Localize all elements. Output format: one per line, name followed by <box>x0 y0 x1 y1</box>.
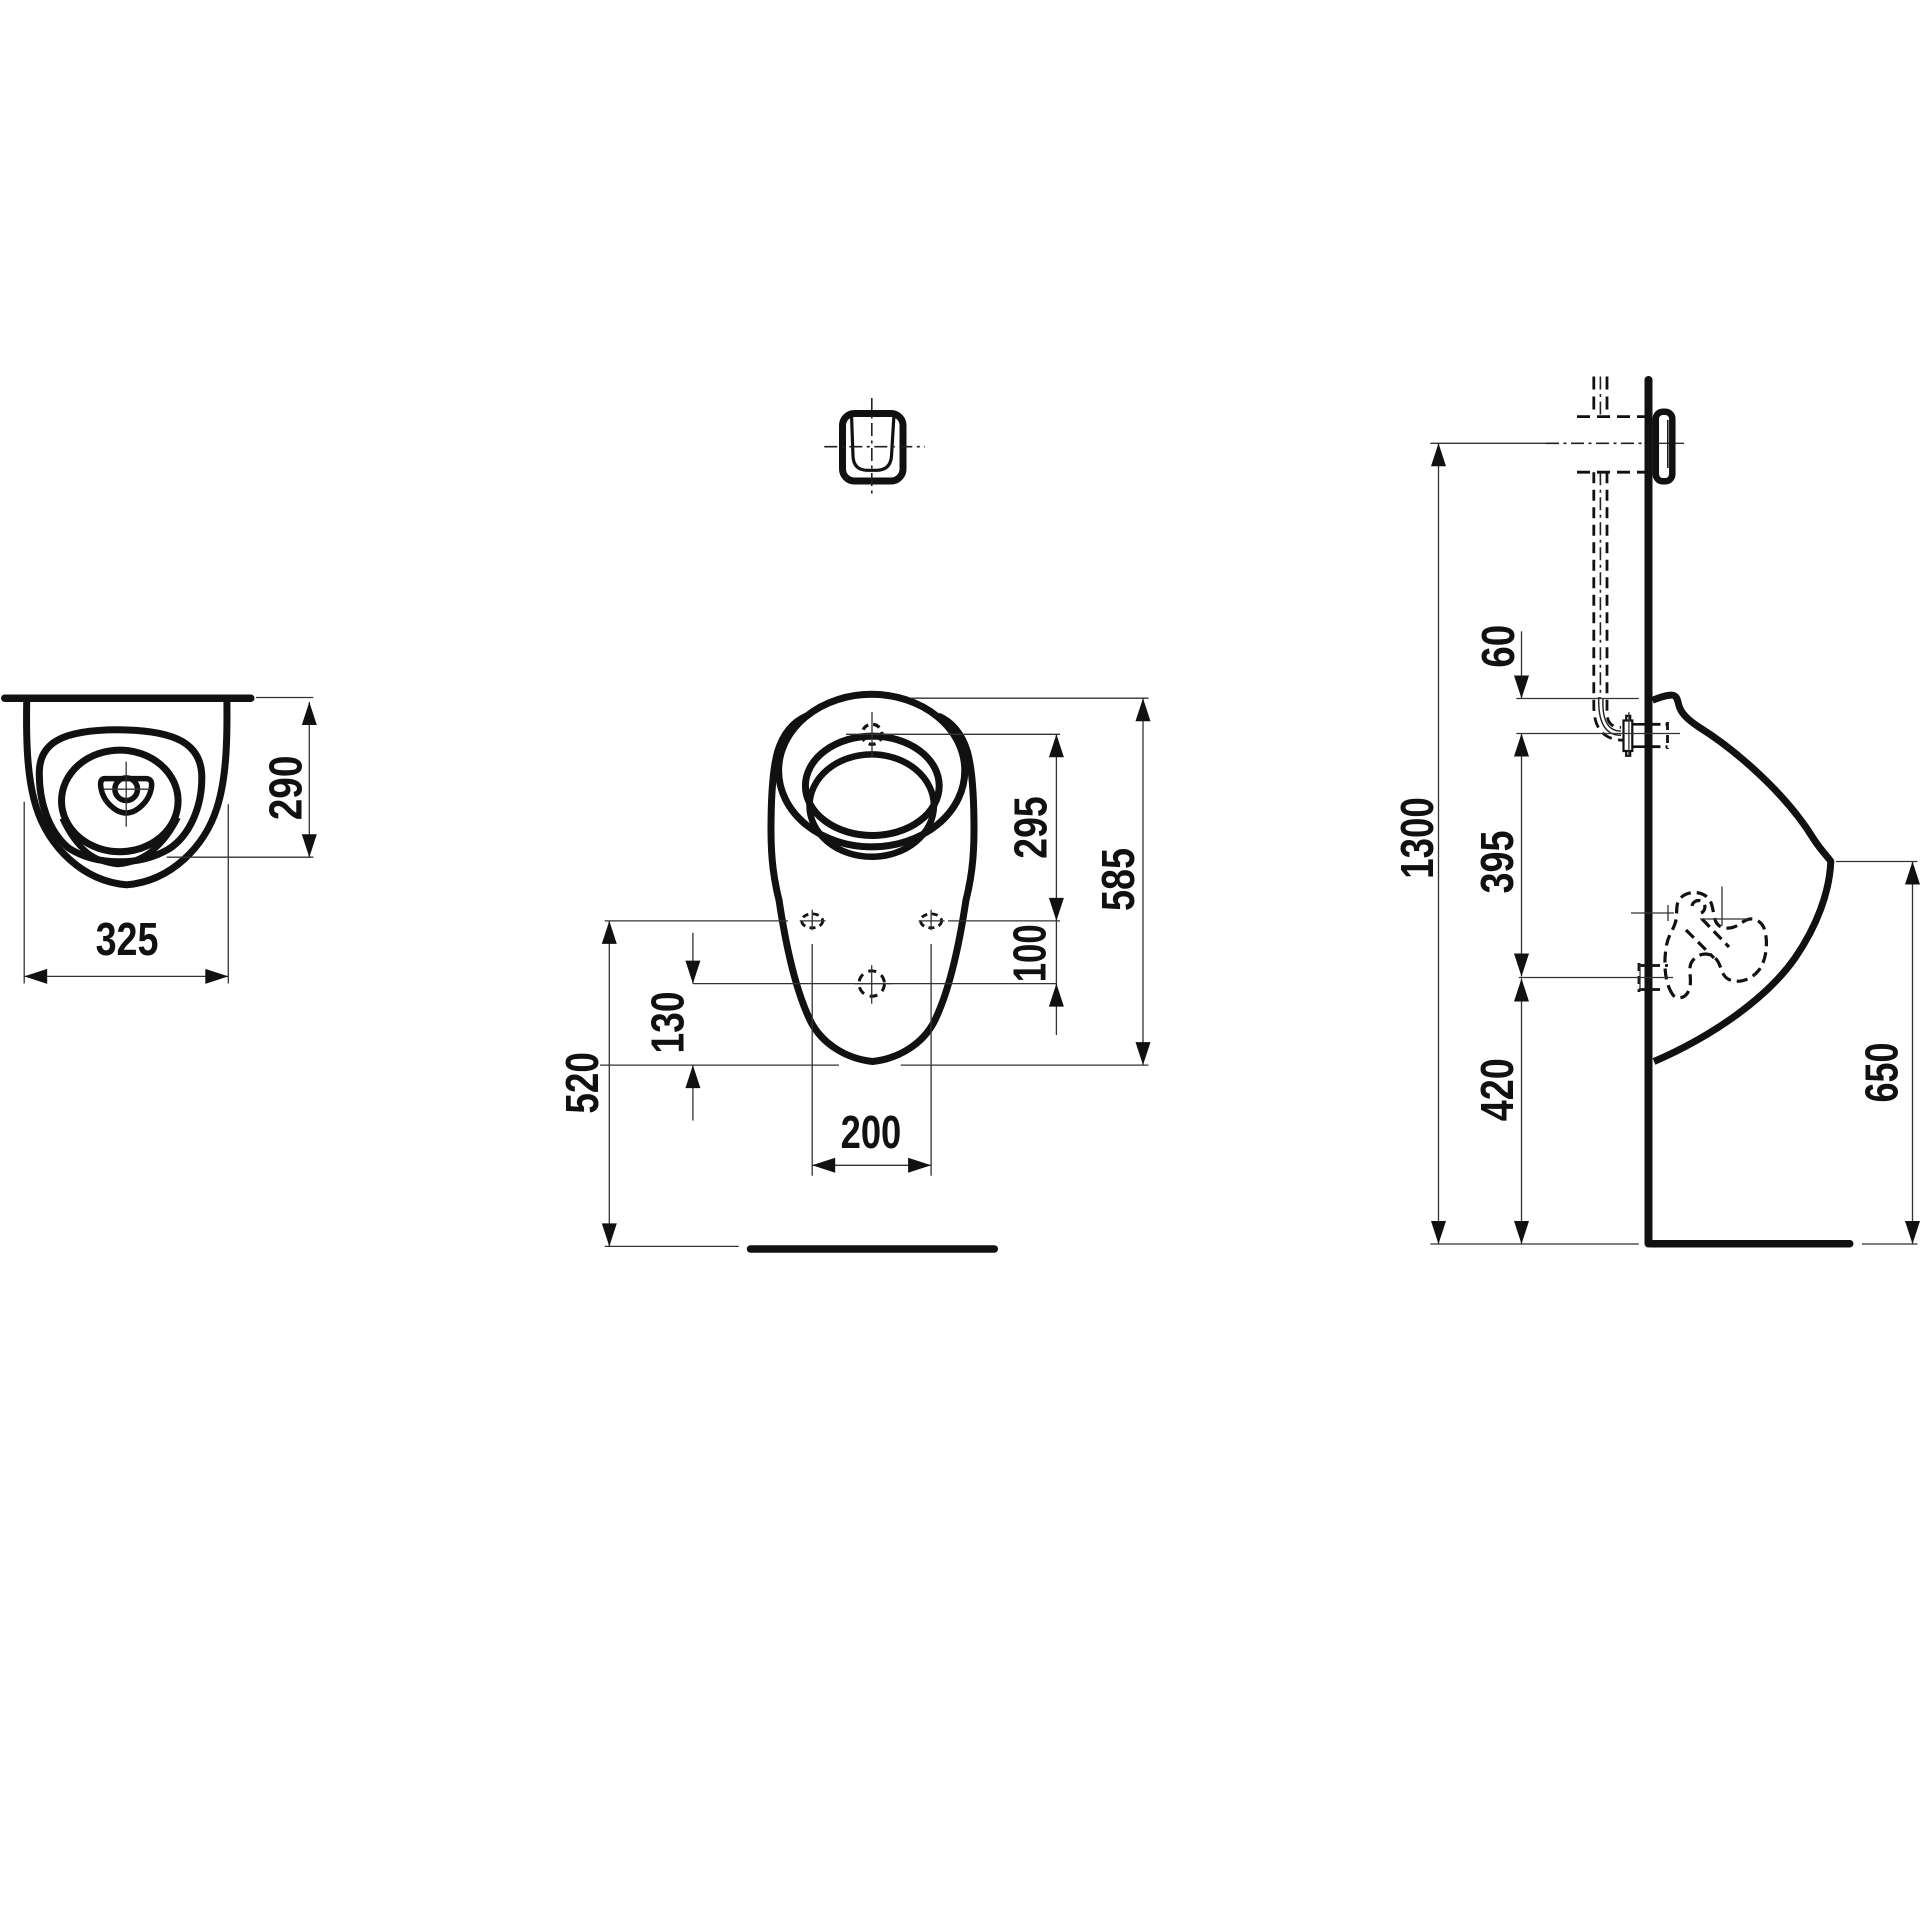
svg-text:520: 520 <box>556 1052 608 1114</box>
svg-text:290: 290 <box>260 756 312 821</box>
svg-text:1300: 1300 <box>1391 797 1443 879</box>
svg-text:420: 420 <box>1471 1058 1523 1121</box>
svg-text:200: 200 <box>841 1106 902 1158</box>
svg-text:130: 130 <box>642 992 694 1054</box>
svg-text:100: 100 <box>1004 924 1056 982</box>
svg-text:60: 60 <box>1472 625 1524 668</box>
svg-text:585: 585 <box>1092 848 1144 911</box>
svg-text:295: 295 <box>1005 796 1057 858</box>
svg-text:395: 395 <box>1471 831 1523 894</box>
svg-text:325: 325 <box>96 913 159 965</box>
svg-text:650: 650 <box>1856 1043 1908 1103</box>
